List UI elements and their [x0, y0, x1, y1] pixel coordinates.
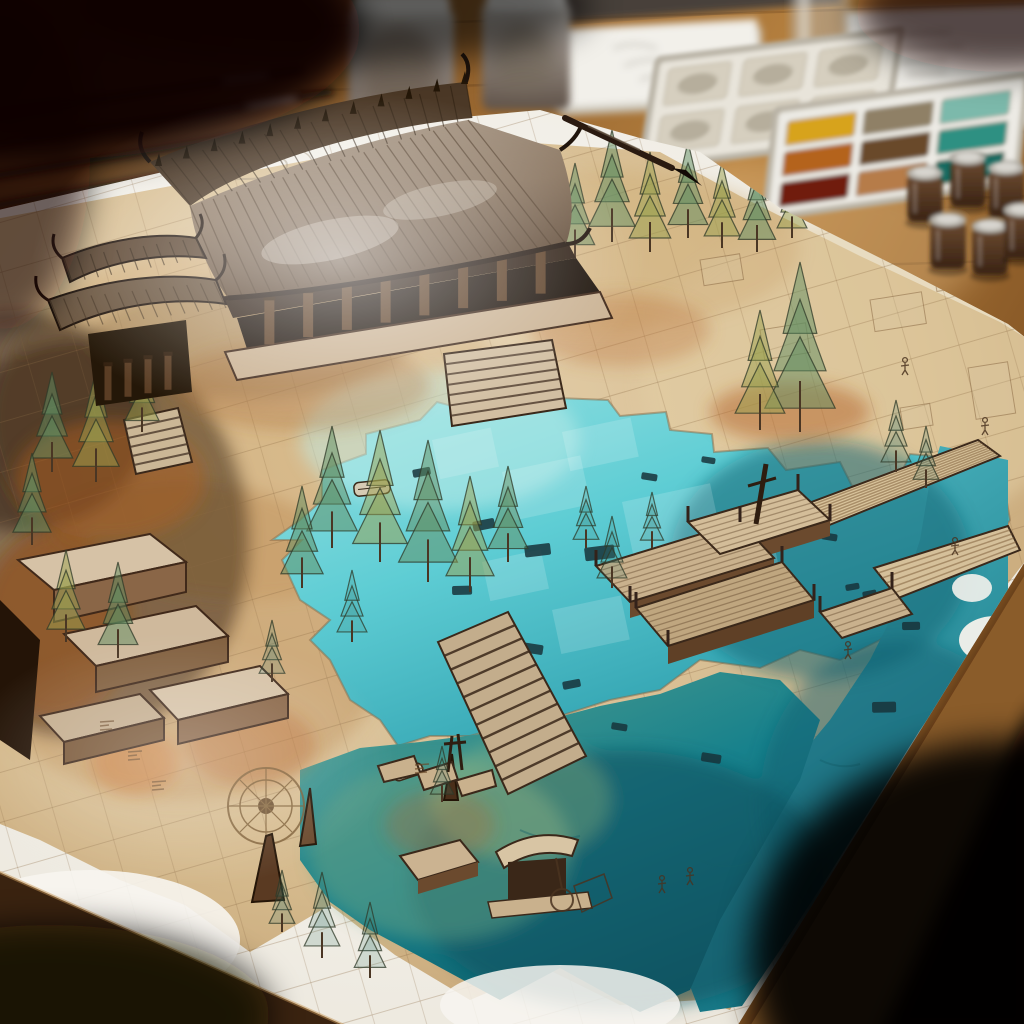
jar-body — [1005, 212, 1024, 258]
sketched-plot — [900, 403, 933, 429]
sketched-plot — [968, 362, 1016, 420]
scene — [0, 0, 1024, 1024]
jar-body — [931, 222, 965, 268]
painted-map-scene — [0, 0, 1024, 1024]
lake-debris — [872, 702, 896, 713]
jar-body — [973, 228, 1007, 274]
ink-jar — [948, 151, 988, 214]
ink-jar — [970, 219, 1010, 282]
lake-debris — [902, 622, 920, 630]
sketched-plot — [700, 254, 744, 286]
ink-jar — [928, 213, 968, 276]
jar-body — [951, 160, 985, 206]
